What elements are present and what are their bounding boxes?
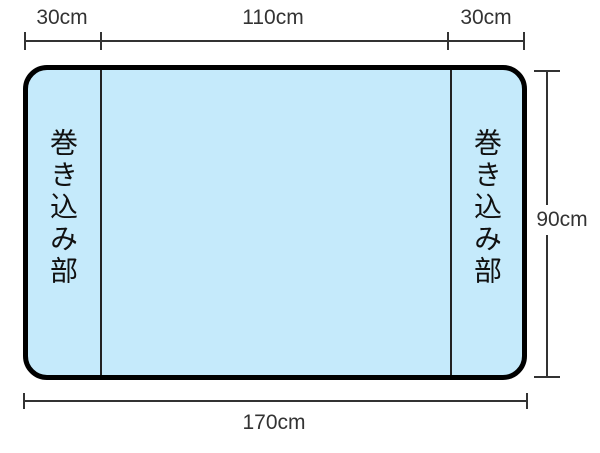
right-dimension-tick-top	[534, 70, 560, 72]
top-left-dimension-label: 30cm	[22, 5, 102, 31]
right-section-label: 巻き込み部	[470, 128, 502, 288]
top-center-dimension-label: 110cm	[223, 5, 323, 31]
top-dimension-tick-left-end	[24, 32, 26, 50]
dimension-diagram: 30cm 110cm 30cm 巻き込み部 巻き込み部 90cm 170cm	[0, 0, 600, 453]
left-section-label: 巻き込み部	[46, 128, 78, 288]
bottom-dimension-tick-right	[526, 393, 528, 409]
bottom-dimension-line	[23, 400, 528, 402]
right-dimension-tick-bottom	[534, 376, 560, 378]
bottom-dimension-tick-left	[23, 393, 25, 409]
top-dimension-tick-right-end	[523, 32, 525, 50]
right-dimension-label: 90cm	[527, 205, 597, 235]
left-fold-line	[100, 70, 102, 375]
top-dimension-tick-left-fold	[100, 32, 102, 50]
bottom-dimension-label: 170cm	[214, 410, 334, 436]
top-right-dimension-label: 30cm	[446, 5, 526, 31]
top-dimension-tick-right-fold	[447, 32, 449, 50]
right-fold-line	[450, 70, 452, 375]
